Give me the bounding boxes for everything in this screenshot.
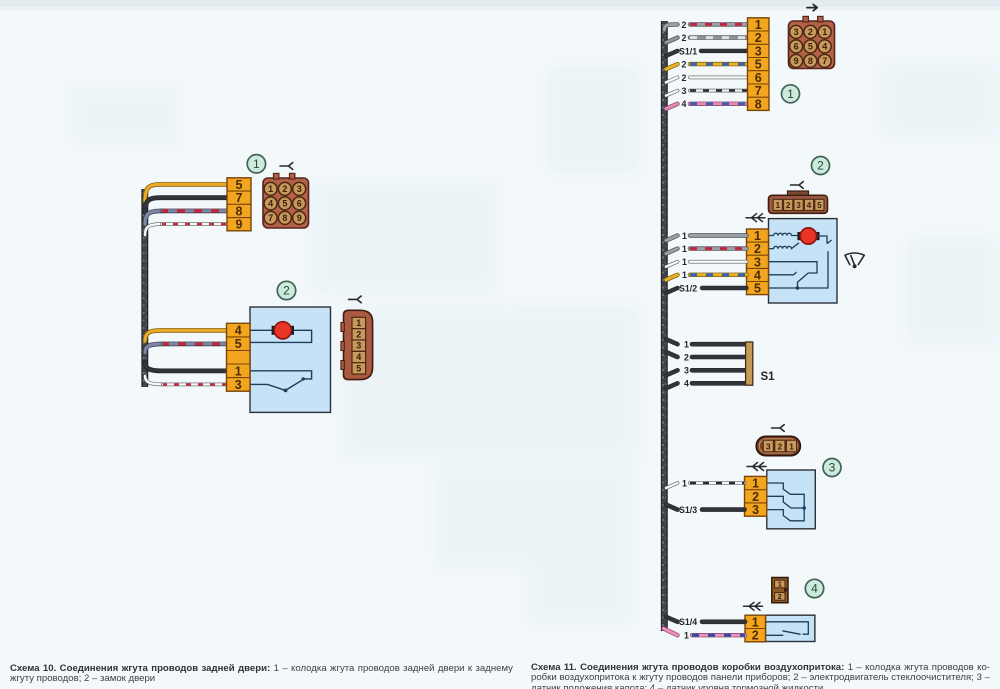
svg-text:8: 8 xyxy=(282,213,287,223)
svg-text:4: 4 xyxy=(682,99,687,109)
svg-text:9: 9 xyxy=(794,56,799,66)
svg-text:4: 4 xyxy=(811,582,818,596)
svg-text:1: 1 xyxy=(787,87,794,101)
svg-text:3: 3 xyxy=(684,366,689,376)
svg-text:4: 4 xyxy=(684,379,689,389)
svg-text:2: 2 xyxy=(682,60,687,70)
svg-text:6: 6 xyxy=(297,199,302,209)
svg-text:3: 3 xyxy=(755,44,762,58)
svg-text:2: 2 xyxy=(778,592,782,601)
svg-text:2: 2 xyxy=(282,184,287,194)
svg-text:4: 4 xyxy=(356,352,361,362)
svg-text:5: 5 xyxy=(755,58,762,72)
svg-text:2: 2 xyxy=(682,73,687,83)
svg-text:7: 7 xyxy=(822,56,827,66)
svg-text:2: 2 xyxy=(283,284,290,298)
svg-text:7: 7 xyxy=(755,84,762,98)
svg-text:5: 5 xyxy=(235,337,242,351)
svg-text:1: 1 xyxy=(682,257,687,267)
svg-text:S1/2: S1/2 xyxy=(679,283,697,293)
svg-text:2: 2 xyxy=(808,27,813,37)
svg-text:2: 2 xyxy=(682,33,687,43)
svg-text:8: 8 xyxy=(808,56,813,66)
svg-text:4: 4 xyxy=(268,199,273,209)
svg-text:S1/4: S1/4 xyxy=(679,617,697,627)
svg-text:S1: S1 xyxy=(761,371,776,383)
svg-text:3: 3 xyxy=(235,378,242,392)
svg-text:2: 2 xyxy=(682,20,687,30)
svg-text:6: 6 xyxy=(755,71,762,85)
svg-text:3: 3 xyxy=(829,461,836,475)
svg-text:9: 9 xyxy=(236,218,243,232)
svg-text:3: 3 xyxy=(766,442,771,451)
svg-text:1: 1 xyxy=(356,318,361,328)
svg-text:4: 4 xyxy=(235,324,242,338)
svg-text:1: 1 xyxy=(682,478,687,488)
svg-text:2: 2 xyxy=(778,442,783,451)
svg-text:7: 7 xyxy=(236,191,243,205)
svg-text:1: 1 xyxy=(682,270,687,280)
svg-text:1: 1 xyxy=(253,157,260,171)
svg-text:5: 5 xyxy=(808,42,813,52)
svg-text:1: 1 xyxy=(776,201,781,210)
svg-text:4: 4 xyxy=(754,268,761,282)
svg-text:2: 2 xyxy=(356,329,361,339)
svg-text:1: 1 xyxy=(755,18,762,32)
svg-text:2: 2 xyxy=(752,490,759,504)
svg-text:1: 1 xyxy=(752,477,759,491)
svg-text:2: 2 xyxy=(755,31,762,45)
svg-text:1: 1 xyxy=(752,615,759,629)
svg-text:1: 1 xyxy=(268,184,273,194)
svg-text:7: 7 xyxy=(268,213,273,223)
svg-text:3: 3 xyxy=(682,86,687,96)
svg-text:5: 5 xyxy=(282,199,287,209)
svg-text:1: 1 xyxy=(682,231,687,241)
svg-text:2: 2 xyxy=(817,159,824,173)
svg-text:3: 3 xyxy=(356,341,361,351)
svg-text:8: 8 xyxy=(236,204,243,218)
svg-text:9: 9 xyxy=(297,213,302,223)
svg-text:5: 5 xyxy=(754,282,761,296)
svg-text:S1/3: S1/3 xyxy=(679,505,697,515)
svg-text:3: 3 xyxy=(297,184,302,194)
svg-text:8: 8 xyxy=(755,97,762,111)
svg-text:5: 5 xyxy=(817,201,822,210)
svg-text:1: 1 xyxy=(789,442,794,451)
svg-text:2: 2 xyxy=(786,201,791,210)
svg-text:1: 1 xyxy=(822,27,827,37)
svg-text:S1/1: S1/1 xyxy=(679,46,697,56)
svg-text:1: 1 xyxy=(754,229,761,243)
svg-text:4: 4 xyxy=(807,201,812,210)
svg-text:5: 5 xyxy=(236,178,243,192)
svg-text:6: 6 xyxy=(794,42,799,52)
svg-text:3: 3 xyxy=(796,201,801,210)
svg-text:3: 3 xyxy=(794,27,799,37)
svg-text:2: 2 xyxy=(684,352,689,362)
svg-text:1: 1 xyxy=(684,631,689,641)
svg-text:1: 1 xyxy=(684,340,689,350)
svg-text:3: 3 xyxy=(754,255,761,269)
svg-text:3: 3 xyxy=(752,503,759,517)
svg-text:1: 1 xyxy=(235,364,242,378)
svg-text:5: 5 xyxy=(356,363,361,373)
svg-text:2: 2 xyxy=(752,629,759,643)
svg-text:1: 1 xyxy=(682,244,687,254)
svg-text:2: 2 xyxy=(754,242,761,256)
svg-text:4: 4 xyxy=(822,42,827,52)
